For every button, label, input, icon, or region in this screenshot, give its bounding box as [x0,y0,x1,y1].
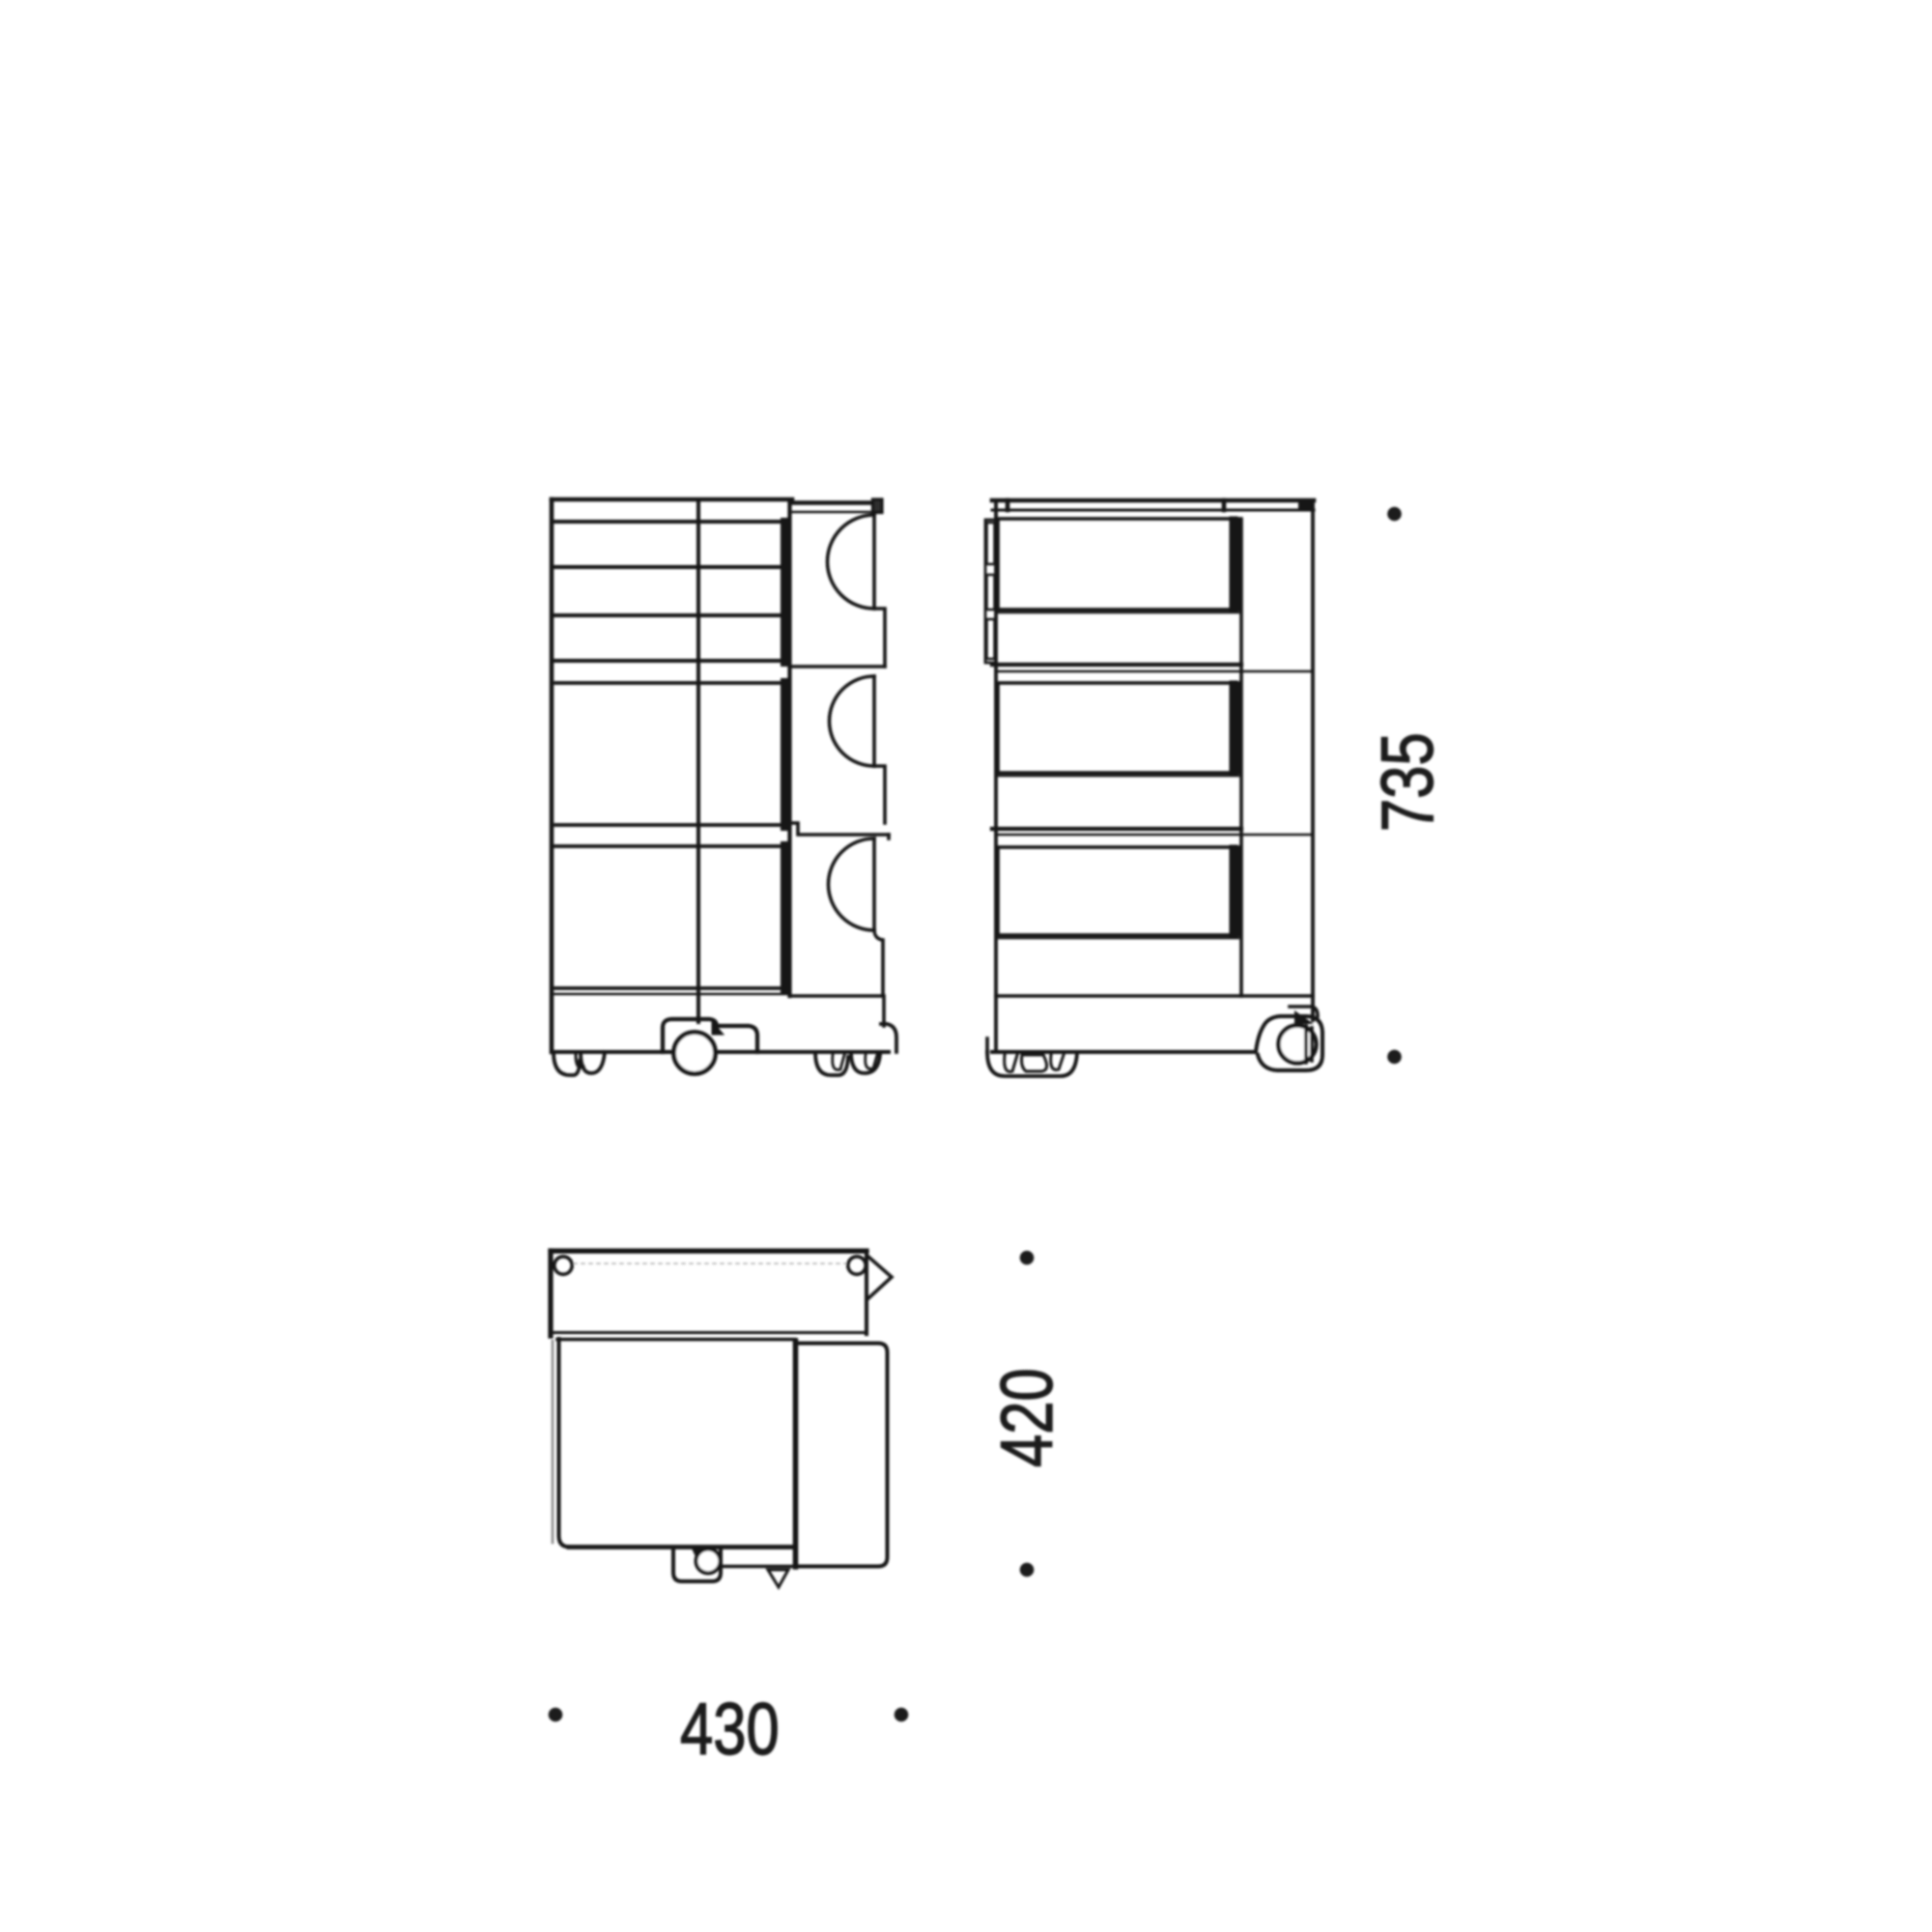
svg-text:735: 735 [1366,732,1449,832]
svg-text:420: 420 [985,1368,1068,1467]
svg-text:430: 430 [680,1688,780,1771]
